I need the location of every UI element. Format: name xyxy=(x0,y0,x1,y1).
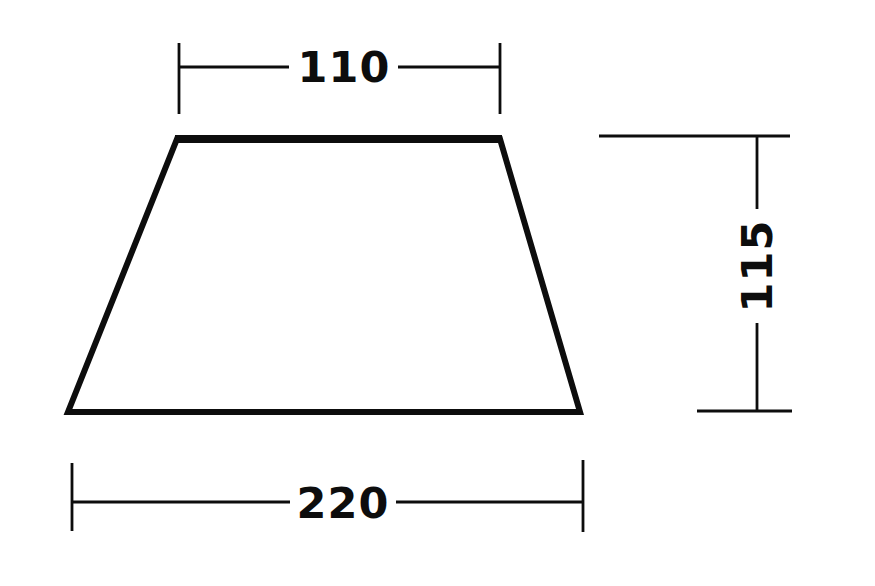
trapezoid-outline xyxy=(68,139,580,412)
dimension-top-width: 110 xyxy=(179,42,500,114)
dimension-drawing: 110 220 115 xyxy=(0,0,875,586)
dimension-label-bottom-width: 220 xyxy=(297,478,390,528)
dimension-bottom-width: 220 xyxy=(72,460,583,532)
dimension-height: 115 xyxy=(599,136,792,411)
dimension-label-top-width: 110 xyxy=(298,42,391,92)
trapezoid-shape xyxy=(68,139,580,412)
dimension-label-height: 115 xyxy=(732,220,782,313)
diagram-canvas: 110 220 115 xyxy=(0,0,875,586)
